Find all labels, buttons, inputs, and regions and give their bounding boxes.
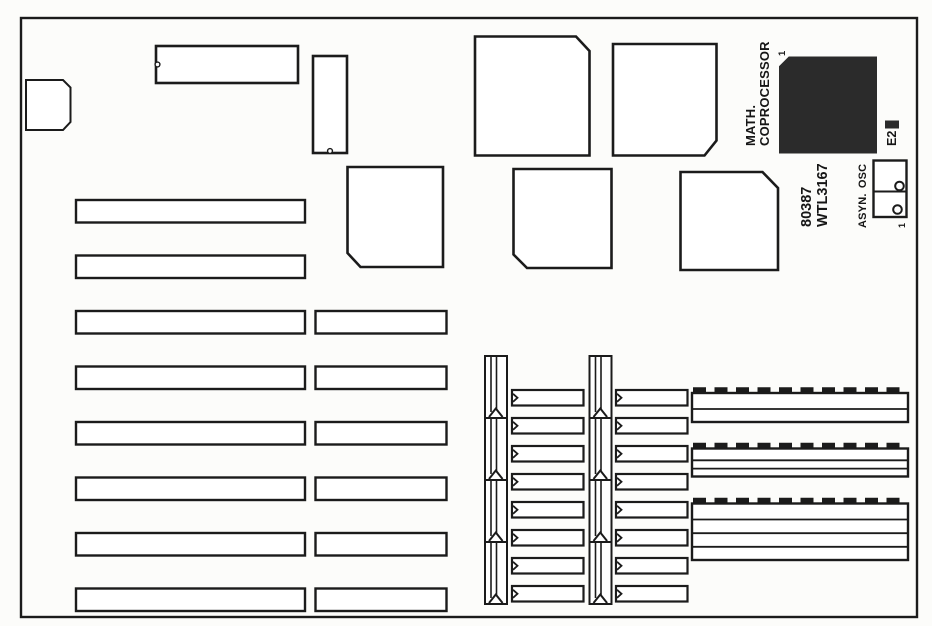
simm-socket-1 [692,390,908,422]
osc-pin-hole-icon [895,182,904,191]
square-chip-4 [514,169,612,268]
dip-socket [616,558,688,574]
dip-socket [512,474,584,490]
motherboard-diagram: MATH. COPROCESSOR 1 80387 WTL3167 E2 ASY… [0,0,932,626]
expansion-slot-short-4 [316,478,447,501]
dip-socket [616,418,688,434]
osc-pin-hole-icon [893,205,902,214]
expansion-slot-short-6 [316,589,447,612]
vertical-socket-strip-2 [590,356,612,604]
pin1-notch-icon [328,149,333,154]
dip-socket [512,390,584,406]
coprocessor-model-label: 80387 WTL3167 [799,160,832,227]
expansion-slot-long-1 [76,200,305,223]
dip-socket [512,418,584,434]
vertical-socket-segment [485,480,507,542]
vertical-socket-segment [590,356,612,418]
jumper-e2-label: E2 [885,128,900,146]
expansion-slot-long-4 [76,367,305,390]
pin1-notch-icon [155,62,160,67]
dip-chip-horizontal [155,46,298,83]
dip-socket [512,530,584,546]
simm-socket-3 [692,501,908,561]
vertical-socket-segment [590,542,612,604]
jumper-e2-block [886,121,899,128]
osc-pin1-label: 1 [897,217,907,228]
vertical-socket-segment [485,542,507,604]
expansion-slot-long-7 [76,533,305,556]
keyboard-connector [26,80,71,130]
dip-socket [512,586,584,602]
expansion-slot-long-8 [76,589,305,612]
dip-socket [512,502,584,518]
expansion-slot-long-3 [76,311,305,334]
dip-socket-column-1 [512,390,584,602]
vertical-socket-segment [485,356,507,418]
coprocessor-model-line2: WTL3167 [815,160,831,227]
expansion-slot-long-2 [76,256,305,279]
math-coprocessor-label-line1: MATH. [744,48,758,146]
expansion-slot-long-5 [76,422,305,445]
asyn-osc-block [874,161,907,218]
square-chip-3 [348,167,444,267]
expansion-slot-long-6 [76,478,305,501]
dip-socket-column-2 [616,390,688,602]
square-chip-2 [613,44,717,156]
board-shapes [0,0,932,626]
dip-socket [616,446,688,462]
math-coprocessor-chip [780,57,877,153]
coprocessor-pin1-label: 1 [777,44,788,56]
dip-socket [616,390,688,406]
asyn-osc-label: ASYN. OSC [856,161,870,228]
vertical-socket-segment [590,418,612,480]
vertical-socket-segment [485,418,507,480]
expansion-slot-short-5 [316,533,447,556]
vertical-socket-strip-1 [485,356,507,604]
dip-socket [512,558,584,574]
expansion-slot-short-1 [316,311,447,334]
dip-socket [616,474,688,490]
square-chip-1 [475,37,590,156]
dip-socket [616,502,688,518]
dip-socket [616,530,688,546]
dip-chip-vertical [313,56,347,153]
dip-socket [512,446,584,462]
dip-socket [616,586,688,602]
coprocessor-model-line1: 80387 [799,160,815,227]
square-chip-5 [681,172,779,270]
math-coprocessor-label-line2: COPROCESSOR [758,48,772,146]
expansion-slot-short-3 [316,422,447,445]
math-coprocessor-label: MATH. COPROCESSOR [744,48,772,146]
expansion-slot-short-2 [316,367,447,390]
simm-socket-2 [692,446,908,477]
vertical-socket-segment [590,480,612,542]
